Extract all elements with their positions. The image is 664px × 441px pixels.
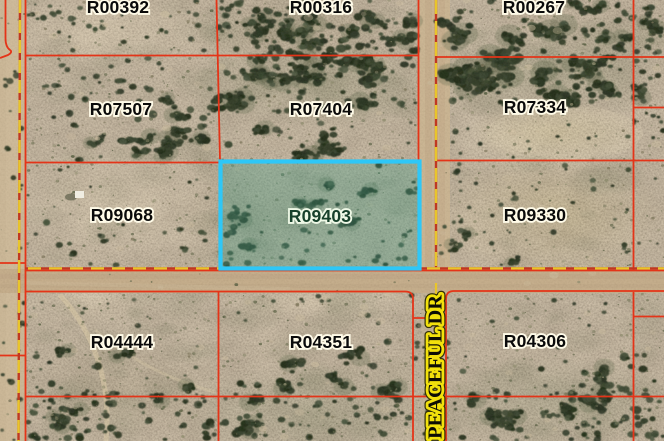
svg-text:PEACEFUL DR: PEACEFUL DR <box>425 295 447 439</box>
svg-text:R09403: R09403 <box>289 206 352 226</box>
svg-text:R00316: R00316 <box>290 0 353 17</box>
svg-text:R04444: R04444 <box>91 332 154 352</box>
svg-text:R09330: R09330 <box>504 205 567 225</box>
svg-text:R09068: R09068 <box>91 205 154 225</box>
svg-text:R04306: R04306 <box>504 331 567 351</box>
svg-text:R07404: R07404 <box>290 99 353 119</box>
svg-text:R00267: R00267 <box>503 0 566 17</box>
svg-text:R07334: R07334 <box>504 97 567 117</box>
svg-text:R00392: R00392 <box>87 0 150 17</box>
svg-text:R07507: R07507 <box>90 99 153 119</box>
svg-text:R04351: R04351 <box>290 332 353 352</box>
